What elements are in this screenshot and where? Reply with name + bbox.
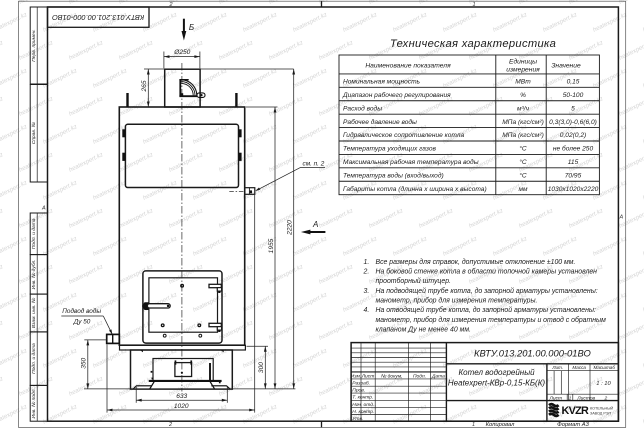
svg-text:измерения: измерения — [506, 66, 540, 73]
svg-text:°С: °С — [519, 171, 527, 179]
svg-text:heatexpert.kz: heatexpert.kz — [592, 11, 629, 34]
svg-text:0,15: 0,15 — [567, 79, 580, 86]
svg-text:heatexpert.kz: heatexpert.kz — [542, 11, 579, 34]
svg-text:heatexpert.kz: heatexpert.kz — [292, 123, 329, 146]
svg-text:Инв. № подл.: Инв. № подл. — [31, 388, 37, 418]
svg-text:heatexpert.kz: heatexpert.kz — [118, 39, 155, 62]
svg-text:МПа (кгс/см²): МПа (кгс/см²) — [502, 119, 544, 126]
svg-text:Масштаб: Масштаб — [593, 365, 615, 370]
svg-text:А: А — [41, 206, 46, 212]
svg-text:Все размеры для справок, допус: Все размеры для справок, допустимые откл… — [376, 258, 576, 266]
svg-text:Расход воды: Расход воды — [343, 104, 382, 112]
svg-text:heatexpert.kz: heatexpert.kz — [168, 151, 205, 174]
svg-text:heatexpert.kz: heatexpert.kz — [442, 67, 479, 90]
svg-text:heatexpert.kz: heatexpert.kz — [342, 11, 379, 34]
svg-text:heatexpert.kz: heatexpert.kz — [0, 123, 29, 146]
svg-text:КВТУ.013.201.00.000-01ВО: КВТУ.013.201.00.000-01ВО — [52, 13, 144, 22]
svg-text:heatexpert.kz: heatexpert.kz — [592, 235, 629, 258]
svg-text:heatexpert.kz: heatexpert.kz — [618, 39, 644, 62]
svg-text:heatexpert.kz: heatexpert.kz — [0, 95, 5, 118]
svg-text:heatexpert.kz: heatexpert.kz — [242, 123, 279, 146]
svg-text:heatexpert.kz: heatexpert.kz — [92, 403, 129, 426]
svg-text:heatexpert.kz: heatexpert.kz — [268, 375, 305, 398]
svg-text:МВт: МВт — [515, 79, 531, 86]
svg-text:heatexpert.kz: heatexpert.kz — [318, 375, 355, 398]
svg-text:Н. контр.: Н. контр. — [352, 409, 374, 415]
svg-text:heatexpert.kz: heatexpert.kz — [192, 67, 229, 90]
svg-text:манометр, прибор для измерения: манометр, прибор для измерения температу… — [376, 297, 538, 305]
svg-text:heatexpert.kz: heatexpert.kz — [192, 179, 229, 202]
svg-text:Подп.: Подп. — [413, 373, 426, 379]
svg-text:heatexpert.kz: heatexpert.kz — [292, 291, 329, 314]
svg-text:heatexpert.kz: heatexpert.kz — [492, 11, 529, 34]
svg-text:1: 1 — [569, 395, 572, 401]
svg-text:Подп. и дата: Подп. и дата — [31, 218, 37, 249]
svg-text:1955: 1955 — [268, 238, 275, 253]
svg-text:heatexpert.kz: heatexpert.kz — [68, 263, 105, 286]
svg-text:heatexpert.kz: heatexpert.kz — [392, 347, 429, 370]
svg-text:heatexpert.kz: heatexpert.kz — [92, 179, 129, 202]
svg-text:heatexpert.kz: heatexpert.kz — [68, 151, 105, 174]
svg-text:heatexpert.kz: heatexpert.kz — [168, 207, 205, 230]
svg-text:heatexpert.kz: heatexpert.kz — [418, 207, 455, 230]
svg-text:5: 5 — [571, 105, 575, 112]
svg-text:heatexpert.kz: heatexpert.kz — [92, 235, 129, 258]
svg-text:heatexpert.kz: heatexpert.kz — [392, 235, 429, 258]
svg-text:Единицы: Единицы — [509, 58, 537, 66]
svg-text:м³/ч: м³/ч — [517, 105, 530, 112]
svg-text:heatexpert.kz: heatexpert.kz — [292, 347, 329, 370]
svg-text:heatexpert.kz: heatexpert.kz — [318, 207, 355, 230]
svg-text:heatexpert.kz: heatexpert.kz — [292, 235, 329, 258]
svg-text:heatexpert.kz: heatexpert.kz — [68, 375, 105, 398]
svg-text:heatexpert.kz: heatexpert.kz — [292, 67, 329, 90]
svg-text:1: 1 — [473, 2, 476, 8]
svg-text:Номинальная мощность: Номинальная мощность — [343, 79, 421, 86]
svg-text:heatexpert.kz: heatexpert.kz — [592, 67, 629, 90]
svg-text:heatexpert.kz: heatexpert.kz — [142, 235, 179, 258]
svg-text:265: 265 — [141, 80, 148, 92]
svg-text:Котел водогрейный: Котел водогрейный — [458, 368, 535, 377]
svg-text:heatexpert.kz: heatexpert.kz — [0, 0, 5, 6]
svg-text:см. п. 2: см. п. 2 — [303, 161, 325, 168]
svg-text:мм: мм — [518, 186, 528, 193]
svg-text:heatexpert.kz: heatexpert.kz — [242, 11, 279, 34]
svg-text:heatexpert.kz: heatexpert.kz — [292, 179, 329, 202]
svg-text:heatexpert.kz: heatexpert.kz — [0, 291, 29, 314]
svg-text:Температура воды (вход/выход): Температура воды (вход/выход) — [343, 171, 444, 179]
svg-text:Наименование показателя: Наименование показателя — [365, 62, 451, 69]
svg-text:клапаном Ду не менее 40 мм.: клапаном Ду не менее 40 мм. — [376, 326, 472, 333]
svg-text:heatexpert.kz: heatexpert.kz — [218, 39, 255, 62]
svg-text:heatexpert.kz: heatexpert.kz — [192, 403, 229, 426]
svg-text:Б: Б — [189, 23, 194, 32]
svg-text:heatexpert.kz: heatexpert.kz — [442, 235, 479, 258]
svg-text:heatexpert.kz: heatexpert.kz — [242, 179, 279, 202]
svg-text:heatexpert.kz: heatexpert.kz — [268, 151, 305, 174]
svg-text:heatexpert.kz: heatexpert.kz — [242, 291, 279, 314]
svg-text:heatexpert.kz: heatexpert.kz — [142, 123, 179, 146]
svg-text:heatexpert.kz: heatexpert.kz — [618, 319, 644, 342]
svg-text:heatexpert.kz: heatexpert.kz — [18, 95, 55, 118]
svg-text:°С: °С — [519, 158, 527, 166]
svg-text:heatexpert.kz: heatexpert.kz — [92, 67, 129, 90]
svg-text:heatexpert.kz: heatexpert.kz — [192, 235, 229, 258]
svg-text:Подп. и дата: Подп. и дата — [31, 343, 37, 374]
svg-text:На отводящей трубе котла, до з: На отводящей трубе котла, до запорной ар… — [376, 306, 596, 314]
svg-text:heatexpert.kz: heatexpert.kz — [492, 235, 529, 258]
svg-text:heatexpert.kz: heatexpert.kz — [292, 403, 329, 426]
svg-text:heatexpert.kz: heatexpert.kz — [568, 207, 605, 230]
svg-text:Справ. №: Справ. № — [31, 122, 37, 144]
svg-text:0,3(3,0)-0,6(6,0): 0,3(3,0)-0,6(6,0) — [549, 119, 597, 126]
svg-text:heatexpert.kz: heatexpert.kz — [618, 375, 644, 398]
svg-text:heatexpert.kz: heatexpert.kz — [192, 11, 229, 34]
svg-text:heatexpert.kz: heatexpert.kz — [68, 207, 105, 230]
svg-text:heatexpert.kz: heatexpert.kz — [192, 291, 229, 314]
svg-text:ЗАВОД РЭП: ЗАВОД РЭП — [590, 412, 611, 416]
svg-text:heatexpert.kz: heatexpert.kz — [292, 11, 329, 34]
svg-text:Копировал: Копировал — [486, 422, 516, 428]
svg-text:%: % — [520, 92, 526, 99]
svg-text:Heatexpert-КВр-0,15-КБ(К): Heatexpert-КВр-0,15-КБ(К) — [448, 379, 545, 388]
svg-text:heatexpert.kz: heatexpert.kz — [318, 39, 355, 62]
svg-text:На подводящей трубе котла, до: На подводящей трубе котла, до запорной а… — [376, 287, 598, 295]
svg-text:heatexpert.kz: heatexpert.kz — [0, 347, 29, 370]
svg-text:Перв. примен.: Перв. примен. — [31, 29, 37, 62]
svg-text:heatexpert.kz: heatexpert.kz — [68, 39, 105, 62]
svg-text:heatexpert.kz: heatexpert.kz — [0, 319, 5, 342]
svg-text:heatexpert.kz: heatexpert.kz — [168, 319, 205, 342]
svg-text:1: 1 — [472, 422, 475, 428]
svg-text:heatexpert.kz: heatexpert.kz — [392, 11, 429, 34]
svg-text:2.: 2. — [363, 269, 370, 276]
svg-text:2: 2 — [604, 395, 608, 401]
svg-text:heatexpert.kz: heatexpert.kz — [618, 95, 644, 118]
svg-text:А: А — [312, 220, 318, 229]
svg-text:heatexpert.kz: heatexpert.kz — [0, 235, 29, 258]
svg-text:Масса: Масса — [572, 365, 586, 370]
svg-text:heatexpert.kz: heatexpert.kz — [342, 291, 379, 314]
svg-text:50-100: 50-100 — [563, 92, 584, 99]
svg-text:Ø250: Ø250 — [173, 49, 190, 56]
svg-text:КВТУ.013.201.00.000-01ВО: КВТУ.013.201.00.000-01ВО — [474, 348, 592, 359]
svg-text:1 : 10: 1 : 10 — [596, 381, 611, 387]
svg-text:Диапазон рабочего регулировани: Диапазон рабочего регулирования — [342, 91, 451, 99]
svg-text:Лист: Лист — [549, 395, 563, 401]
svg-text:1020: 1020 — [174, 403, 189, 410]
svg-text:heatexpert.kz: heatexpert.kz — [218, 319, 255, 342]
svg-text:heatexpert.kz: heatexpert.kz — [192, 123, 229, 146]
svg-text:Габариты котла (длинна х ширин: Габариты котла (длинна х ширина х высота… — [343, 185, 487, 193]
svg-text:1030х1020х2220: 1030х1020х2220 — [548, 186, 599, 193]
svg-text:heatexpert.kz: heatexpert.kz — [0, 151, 5, 174]
svg-text:Гидравлическое сопротивление к: Гидравлическое сопротивление котла — [343, 131, 464, 139]
svg-text:Ду 50: Ду 50 — [73, 318, 91, 325]
svg-text:Температура уходящих газов: Температура уходящих газов — [343, 145, 436, 153]
svg-text:2: 2 — [169, 2, 173, 8]
svg-text:heatexpert.kz: heatexpert.kz — [0, 207, 5, 230]
svg-text:КОТЕЛЬНЫЙ: КОТЕЛЬНЫЙ — [590, 406, 613, 410]
svg-text:Подвод воды: Подвод воды — [62, 307, 101, 315]
svg-text:Нач. отд.: Нач. отд. — [352, 402, 374, 408]
svg-text:heatexpert.kz: heatexpert.kz — [18, 151, 55, 174]
svg-text:А: А — [619, 214, 624, 220]
svg-text:Лист: Лист — [361, 373, 375, 379]
svg-text:heatexpert.kz: heatexpert.kz — [268, 95, 305, 118]
svg-text:115: 115 — [568, 159, 579, 166]
svg-text:heatexpert.kz: heatexpert.kz — [118, 207, 155, 230]
svg-text:Взам. инв. №: Взам. инв. № — [31, 298, 37, 328]
svg-text:№ докум.: № докум. — [381, 373, 403, 379]
svg-text:Листов: Листов — [576, 395, 595, 401]
svg-text:На боковой стенке котла в обла: На боковой стенке котла в области топочн… — [376, 268, 598, 276]
svg-text:2: 2 — [168, 422, 172, 428]
svg-text:heatexpert.kz: heatexpert.kz — [168, 263, 205, 286]
svg-text:Инв. № дубл.: Инв. № дубл. — [31, 259, 37, 289]
svg-text:70/95: 70/95 — [565, 172, 582, 179]
svg-text:МПа (кгс/см²): МПа (кгс/см²) — [502, 132, 544, 139]
svg-text:Пров.: Пров. — [352, 388, 365, 394]
svg-text:Максимальная рабочая температу: Максимальная рабочая температура воды — [343, 158, 479, 166]
svg-text:heatexpert.kz: heatexpert.kz — [142, 179, 179, 202]
svg-text:heatexpert.kz: heatexpert.kz — [318, 319, 355, 342]
svg-text:heatexpert.kz: heatexpert.kz — [0, 39, 5, 62]
svg-text:heatexpert.kz: heatexpert.kz — [142, 11, 179, 34]
svg-text:heatexpert.kz: heatexpert.kz — [268, 263, 305, 286]
svg-text:heatexpert.kz: heatexpert.kz — [342, 347, 379, 370]
svg-text:Утв.: Утв. — [352, 416, 363, 422]
svg-text:heatexpert.kz: heatexpert.kz — [442, 11, 479, 34]
svg-text:heatexpert.kz: heatexpert.kz — [218, 263, 255, 286]
svg-text:манометр, прибор для измерения: манометр, прибор для измерения температу… — [376, 316, 607, 324]
svg-text:heatexpert.kz: heatexpert.kz — [0, 403, 29, 426]
svg-text:3.: 3. — [364, 288, 370, 295]
svg-text:heatexpert.kz: heatexpert.kz — [542, 235, 579, 258]
svg-text:heatexpert.kz: heatexpert.kz — [218, 207, 255, 230]
svg-text:Рабочее давление воды: Рабочее давление воды — [343, 118, 417, 126]
svg-text:проотборный штуцер.: проотборный штуцер. — [376, 277, 452, 285]
svg-text:300: 300 — [258, 362, 265, 373]
svg-text:heatexpert.kz: heatexpert.kz — [242, 67, 279, 90]
svg-text:heatexpert.kz: heatexpert.kz — [268, 319, 305, 342]
svg-text:°С: °С — [519, 145, 527, 153]
svg-text:Лит.: Лит. — [551, 365, 563, 370]
svg-text:KVZR: KVZR — [562, 405, 589, 417]
svg-text:heatexpert.kz: heatexpert.kz — [242, 403, 279, 426]
svg-text:heatexpert.kz: heatexpert.kz — [618, 263, 644, 286]
svg-text:heatexpert.kz: heatexpert.kz — [268, 39, 305, 62]
svg-text:heatexpert.kz: heatexpert.kz — [0, 67, 29, 90]
svg-text:heatexpert.kz: heatexpert.kz — [592, 123, 629, 146]
svg-text:Т. контр.: Т. контр. — [352, 395, 373, 401]
svg-text:4.: 4. — [364, 307, 370, 314]
svg-text:heatexpert.kz: heatexpert.kz — [318, 263, 355, 286]
svg-text:1.: 1. — [364, 259, 370, 266]
svg-text:Дата: Дата — [431, 373, 445, 379]
svg-text:633: 633 — [176, 393, 187, 400]
svg-text:не более 250: не более 250 — [553, 145, 594, 153]
svg-text:0,02(0,2): 0,02(0,2) — [560, 132, 586, 139]
svg-text:350: 350 — [81, 357, 88, 368]
svg-text:heatexpert.kz: heatexpert.kz — [368, 207, 405, 230]
svg-text:heatexpert.kz: heatexpert.kz — [518, 207, 555, 230]
svg-text:heatexpert.kz: heatexpert.kz — [218, 151, 255, 174]
svg-text:Изм.: Изм. — [351, 373, 361, 379]
svg-text:heatexpert.kz: heatexpert.kz — [0, 11, 29, 34]
svg-text:heatexpert.kz: heatexpert.kz — [342, 235, 379, 258]
svg-text:Разраб.: Разраб. — [352, 380, 370, 386]
svg-text:heatexpert.kz: heatexpert.kz — [468, 207, 505, 230]
svg-text:2220: 2220 — [287, 220, 294, 236]
svg-text:Техническая характеристика: Техническая характеристика — [390, 38, 556, 50]
svg-text:heatexpert.kz: heatexpert.kz — [68, 95, 105, 118]
svg-text:Значение: Значение — [551, 62, 581, 69]
svg-text:heatexpert.kz: heatexpert.kz — [0, 179, 29, 202]
svg-text:Формат А3: Формат А3 — [557, 422, 589, 428]
svg-text:heatexpert.kz: heatexpert.kz — [618, 151, 644, 174]
svg-text:heatexpert.kz: heatexpert.kz — [0, 375, 5, 398]
svg-text:heatexpert.kz: heatexpert.kz — [0, 263, 5, 286]
